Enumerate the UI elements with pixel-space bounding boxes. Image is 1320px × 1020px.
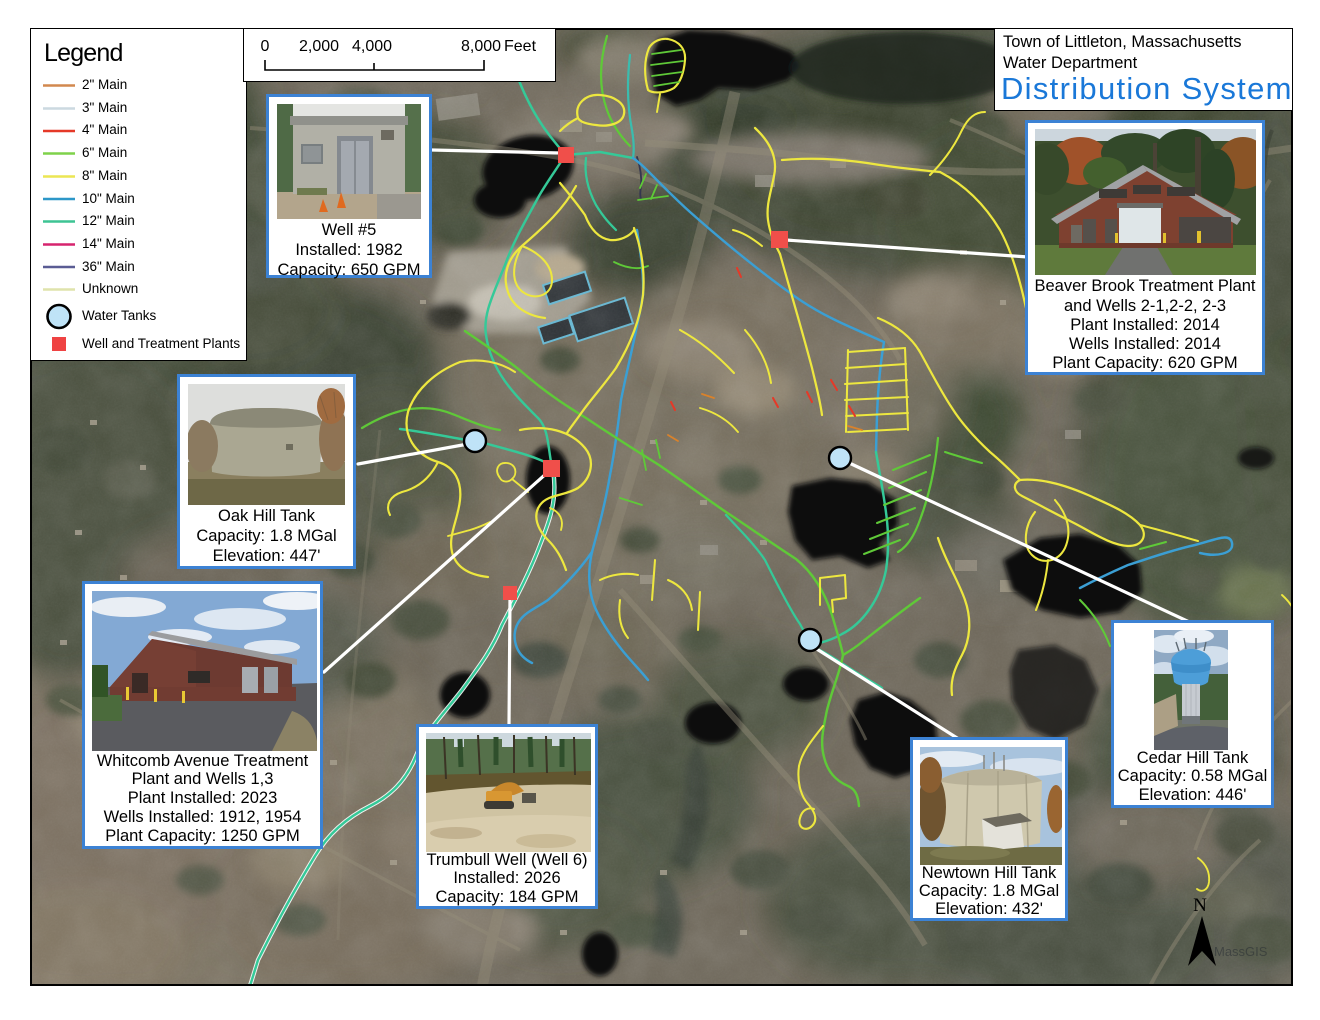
svg-text:N: N	[1193, 895, 1207, 916]
svg-text:Feet: Feet	[504, 38, 537, 55]
svg-text:4,000: 4,000	[352, 38, 392, 55]
svg-text:2,000: 2,000	[299, 38, 339, 55]
svg-text:MassGIS: MassGIS	[1214, 944, 1268, 959]
svg-text:0: 0	[261, 38, 270, 55]
svg-text:8,000: 8,000	[461, 38, 501, 55]
